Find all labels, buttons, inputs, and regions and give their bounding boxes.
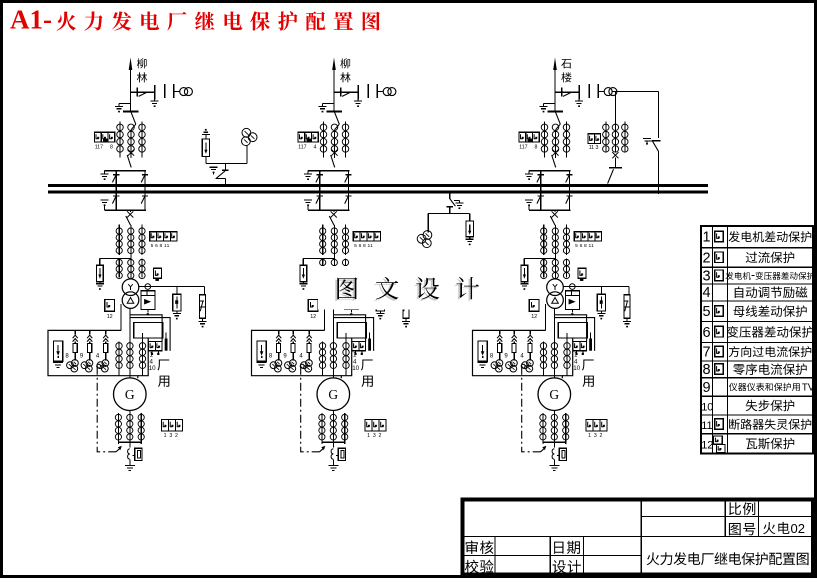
svg-text:5 6 8 11: 5 6 8 11: [354, 243, 373, 249]
svg-text:5: 5: [703, 304, 711, 320]
svg-text:4: 4: [314, 145, 317, 151]
svg-text:4: 4: [703, 285, 711, 301]
svg-text:G: G: [549, 387, 559, 402]
svg-text:7: 7: [703, 345, 711, 361]
svg-text:12: 12: [107, 314, 113, 320]
svg-text:2: 2: [703, 250, 711, 266]
svg-text:117: 117: [95, 145, 103, 151]
svg-text:9: 9: [703, 380, 711, 396]
svg-text:TV: TV: [802, 382, 815, 393]
svg-text:12: 12: [701, 439, 713, 451]
svg-text:5 6 8 11: 5 6 8 11: [575, 243, 594, 249]
svg-text:1: 1: [353, 352, 357, 359]
svg-text:A1-: A1-: [10, 5, 52, 35]
svg-text:8: 8: [110, 145, 113, 151]
svg-text:12: 12: [531, 314, 537, 320]
svg-text:1 3 2: 1 3 2: [164, 433, 179, 439]
svg-text:11: 11: [701, 420, 712, 432]
svg-text:8: 8: [703, 362, 711, 378]
svg-text:11 3: 11 3: [589, 145, 599, 151]
svg-text:02: 02: [791, 521, 805, 536]
svg-text:1: 1: [150, 352, 154, 359]
svg-text:10: 10: [573, 365, 580, 372]
svg-text:117: 117: [298, 145, 306, 151]
svg-text:G: G: [125, 387, 135, 402]
svg-text:10: 10: [149, 365, 156, 372]
svg-text:1 3 2: 1 3 2: [367, 433, 382, 439]
svg-text:1: 1: [574, 352, 578, 359]
svg-text:1: 1: [703, 230, 711, 246]
svg-text:10: 10: [701, 401, 713, 413]
svg-text:5 6 8 11: 5 6 8 11: [151, 243, 170, 249]
svg-text:3: 3: [703, 268, 711, 284]
svg-text:8: 8: [535, 145, 538, 151]
svg-text:G: G: [328, 387, 338, 402]
svg-text:10: 10: [352, 365, 359, 372]
svg-text:12: 12: [310, 314, 316, 320]
svg-text:117: 117: [519, 145, 527, 151]
svg-text:1 3 2: 1 3 2: [588, 433, 603, 439]
svg-text:6: 6: [703, 325, 711, 341]
